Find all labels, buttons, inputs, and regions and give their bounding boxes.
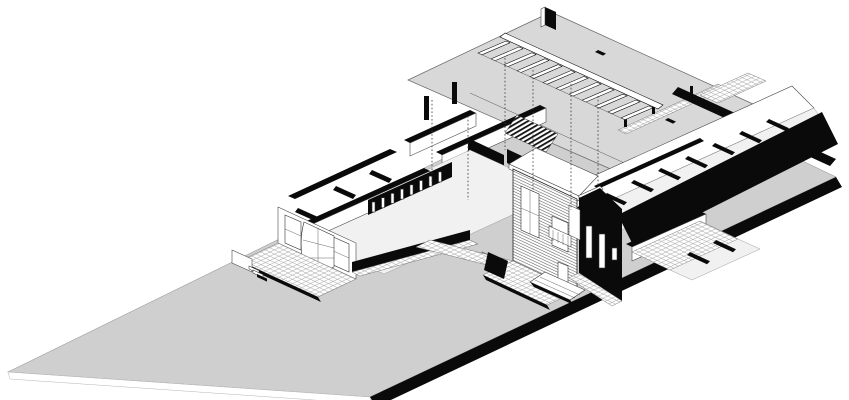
wall-post	[424, 96, 429, 120]
cross-wall	[333, 186, 356, 199]
cross-wall	[369, 170, 392, 183]
recess-wall	[569, 205, 580, 240]
slit-window	[612, 248, 617, 260]
slit-window	[586, 226, 592, 258]
slit-window	[599, 234, 605, 268]
axonometric-cutaway-drawing	[0, 0, 849, 400]
wall-post	[452, 82, 457, 104]
architectural-drawing-canvas	[0, 0, 849, 400]
chimney-side	[541, 7, 545, 27]
